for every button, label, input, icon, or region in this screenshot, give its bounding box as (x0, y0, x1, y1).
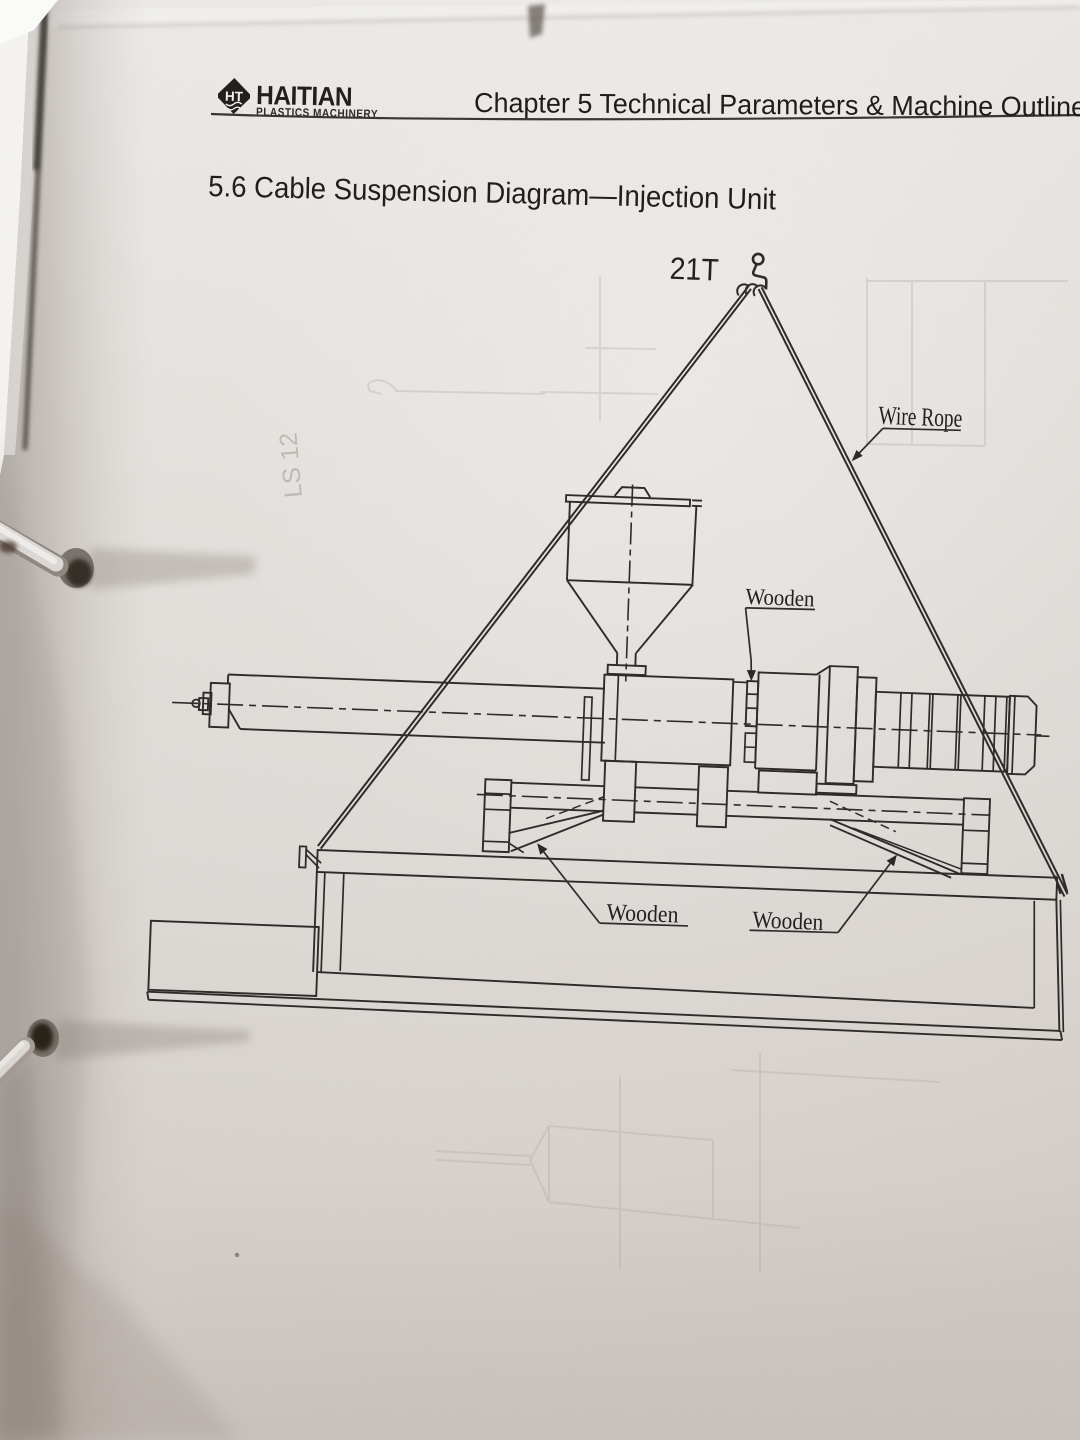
svg-text:21T: 21T (669, 251, 719, 288)
